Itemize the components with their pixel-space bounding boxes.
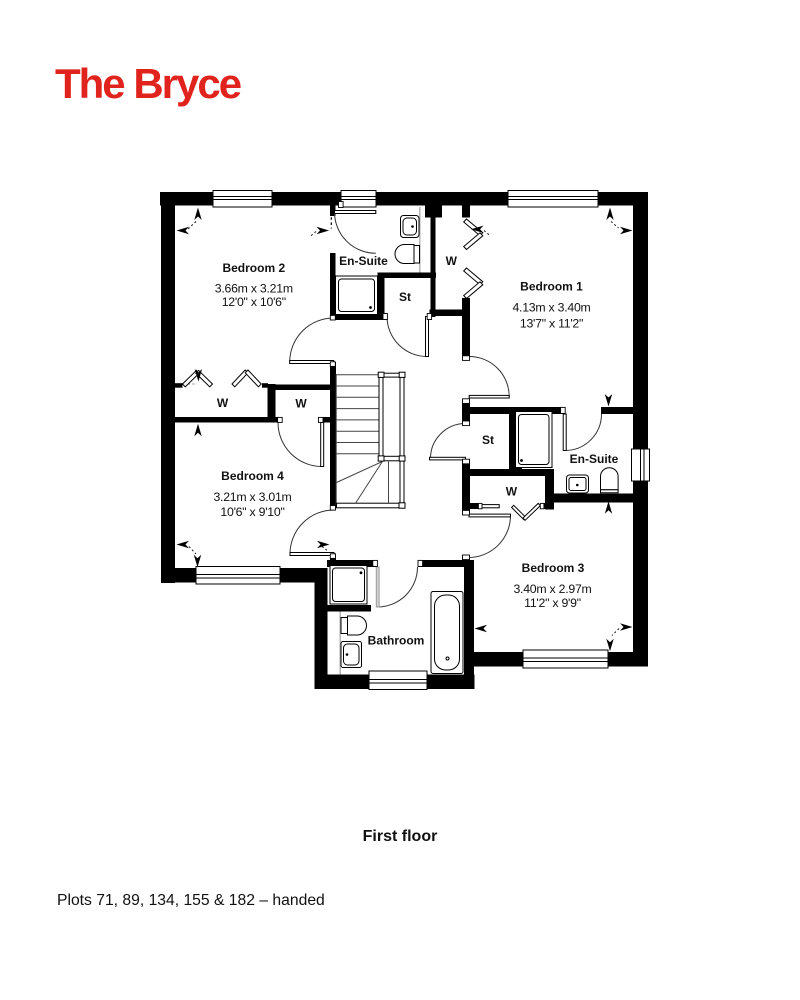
svg-text:3.40m x 2.97m: 3.40m x 2.97m [513, 582, 591, 596]
svg-text:4.13m x 3.40m: 4.13m x 3.40m [512, 301, 590, 315]
svg-text:Bedroom 1: Bedroom 1 [520, 280, 583, 294]
svg-text:W: W [506, 485, 518, 499]
svg-text:En-Suite: En-Suite [570, 452, 619, 466]
svg-text:Bedroom 3: Bedroom 3 [522, 561, 585, 575]
svg-text:12'0" x 10'6": 12'0" x 10'6" [222, 295, 286, 309]
svg-text:W: W [295, 397, 307, 411]
svg-text:Bedroom 4: Bedroom 4 [221, 469, 284, 483]
svg-text:3.66m x 3.21m: 3.66m x 3.21m [215, 282, 293, 296]
svg-text:10'6" x 9'10": 10'6" x 9'10" [220, 505, 284, 519]
svg-text:St: St [399, 290, 411, 304]
svg-text:St: St [482, 433, 494, 447]
svg-text:W: W [446, 254, 458, 268]
svg-text:En-Suite: En-Suite [339, 254, 388, 268]
svg-text:13'7" x 11'2": 13'7" x 11'2" [520, 317, 583, 331]
svg-text:Bathroom: Bathroom [368, 634, 425, 648]
svg-text:W: W [217, 396, 229, 410]
svg-text:Bedroom 2: Bedroom 2 [222, 261, 285, 275]
svg-text:11'2" x 9'9": 11'2" x 9'9" [524, 596, 581, 610]
svg-text:3.21m x 3.01m: 3.21m x 3.01m [213, 490, 291, 504]
